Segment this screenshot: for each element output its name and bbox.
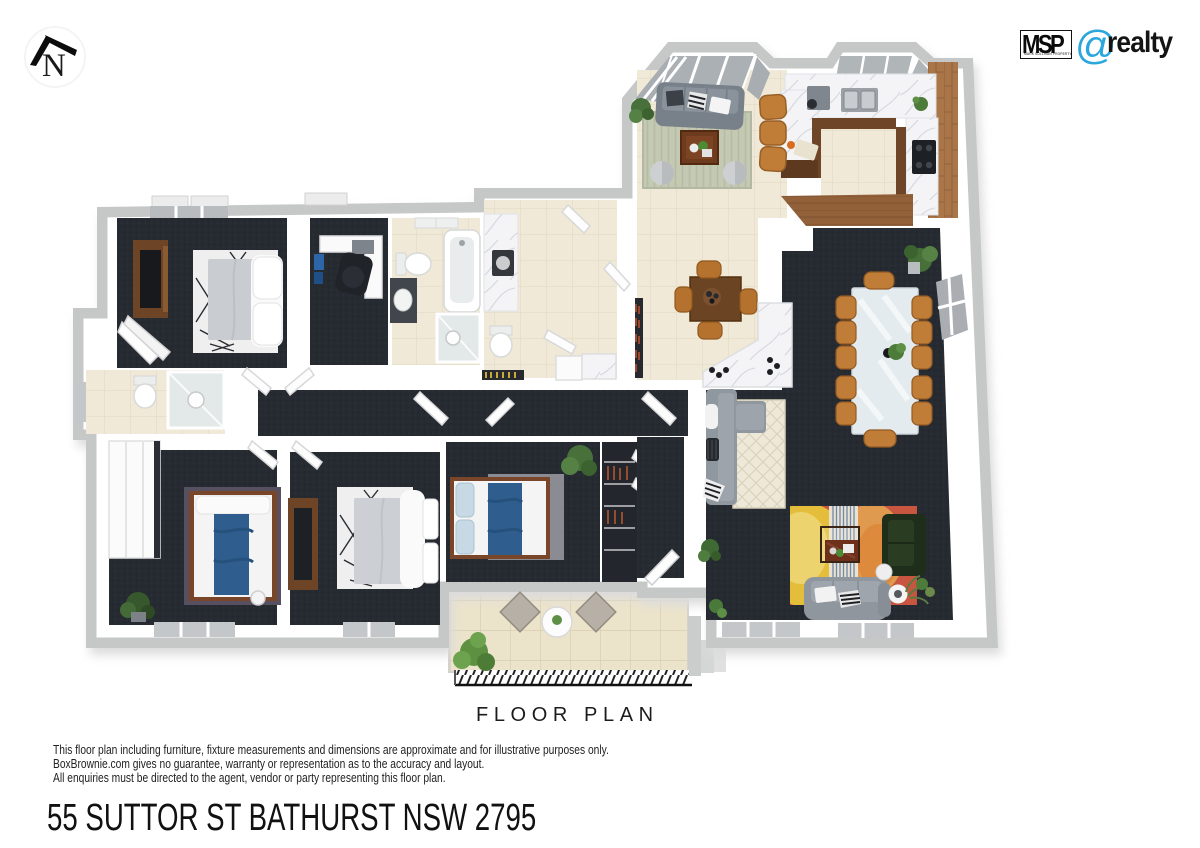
svg-text:N: N [42,48,66,84]
